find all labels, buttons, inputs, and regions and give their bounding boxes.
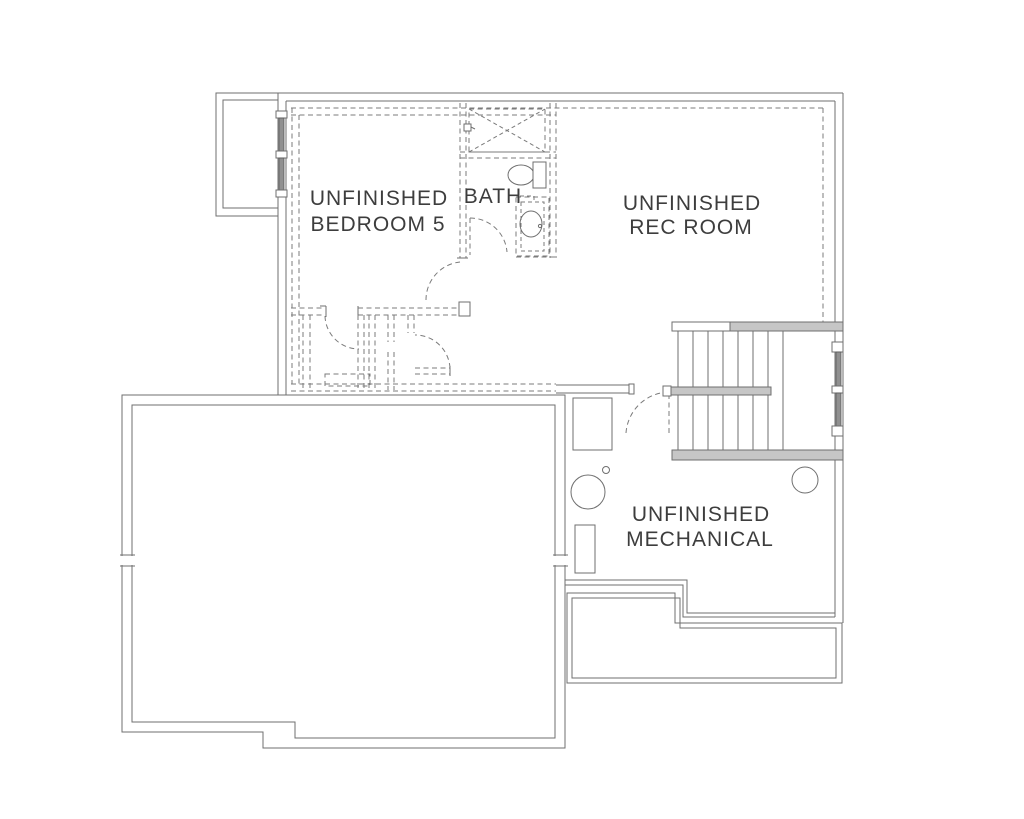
rec-room-label-line2: REC ROOM — [629, 216, 753, 239]
floor-drain — [603, 467, 610, 474]
foundation-ledge — [567, 593, 842, 683]
stair-handrail — [666, 387, 771, 395]
rec-room-label-line1: UNFINISHED — [623, 192, 761, 215]
stair-window — [832, 342, 843, 436]
stair-door-swing — [626, 392, 670, 433]
floor-plan-drawing: UNFINISHED BEDROOM 5 BATH UNFINISHED REC… — [0, 0, 1024, 819]
window-well — [216, 93, 278, 216]
furring-walls — [291, 108, 823, 391]
shower-head — [464, 124, 471, 131]
hall-mech-wall — [556, 384, 634, 394]
room-labels: UNFINISHED BEDROOM 5 BATH UNFINISHED REC… — [310, 185, 774, 551]
mechanical-label-line1: UNFINISHED — [632, 503, 770, 526]
bath-door-swing — [470, 218, 507, 255]
furnace — [573, 398, 612, 450]
bedroom-label-line1: UNFINISHED — [310, 187, 448, 210]
closet-walls — [291, 302, 470, 390]
sump-circle — [792, 467, 818, 493]
hall-door-swing — [426, 262, 460, 300]
utility-equipment — [575, 525, 595, 573]
stairs — [663, 322, 843, 460]
closet-door-swing — [325, 316, 359, 349]
floor-plan-canvas: UNFINISHED BEDROOM 5 BATH UNFINISHED REC… — [0, 0, 1024, 819]
mechanical-label-line2: MECHANICAL — [626, 528, 774, 551]
closet-door-swing-2 — [415, 335, 450, 376]
water-heater — [571, 475, 605, 509]
bath-label: BATH — [464, 185, 522, 208]
bedroom-label-line2: BEDROOM 5 — [310, 213, 445, 236]
storage-room-walls — [120, 395, 568, 748]
